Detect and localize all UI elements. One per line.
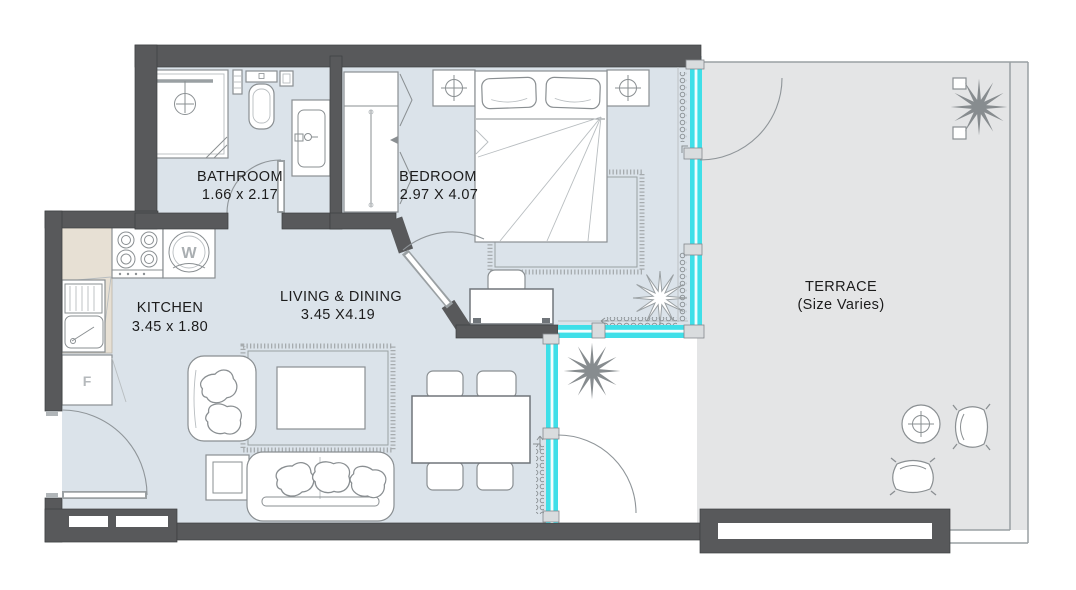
toilet-paper-holder	[280, 71, 293, 86]
washing-machine: W	[163, 227, 215, 278]
washer-label: W	[181, 245, 197, 262]
shower	[147, 70, 228, 158]
terrace-floor	[697, 62, 1028, 530]
terrace-window	[718, 523, 932, 539]
bed	[475, 71, 607, 242]
terrace-chair	[890, 458, 936, 495]
living-terrace-door-swing	[558, 435, 636, 513]
dining-table	[412, 396, 530, 463]
bathroom-vanity	[292, 100, 330, 176]
fridge-label: F	[83, 373, 92, 389]
floor-plan-drawing: W F	[0, 0, 1076, 590]
side-table	[206, 455, 249, 500]
nightstand-left	[433, 70, 475, 106]
terrace-dimensions: (Size Varies)	[797, 297, 884, 313]
nightstand-right	[607, 70, 649, 106]
window	[116, 516, 168, 527]
toilet	[246, 71, 277, 129]
kitchen-label: KITCHEN	[137, 300, 203, 316]
terrace-label: TERRACE	[805, 279, 877, 295]
terrace-plant-mid	[564, 343, 621, 400]
bathroom-label: BATHROOM	[197, 169, 283, 185]
bathroom-shelf	[233, 70, 242, 94]
terrace-table	[902, 405, 940, 443]
floor-plan: W F	[0, 0, 1076, 590]
bathroom-dimensions: 1.66 x 2.17	[202, 187, 278, 203]
kitchen-sink	[62, 280, 105, 352]
sofa	[247, 452, 394, 521]
tv-table	[277, 367, 365, 429]
stove	[112, 227, 163, 278]
bedroom-desk	[470, 289, 553, 324]
kitchen-dimensions: 3.45 x 1.80	[132, 319, 208, 335]
living-dining-dimensions: 3.45 X4.19	[301, 307, 375, 323]
living-dining-label: LIVING & DINING	[280, 289, 402, 305]
bedroom-dimensions: 2.97 X 4.07	[400, 187, 479, 203]
terrace-chair	[953, 404, 990, 450]
armchair	[188, 356, 256, 441]
window	[69, 516, 108, 527]
bedroom-label: BEDROOM	[399, 169, 477, 185]
